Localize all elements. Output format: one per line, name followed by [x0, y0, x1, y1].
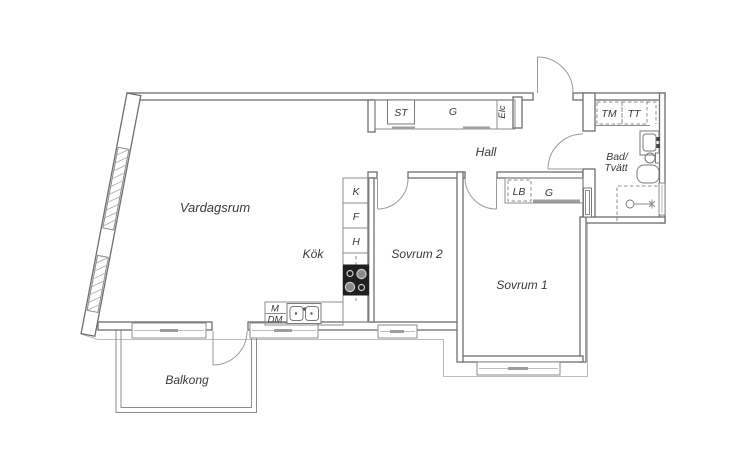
radiator-icon	[584, 188, 592, 217]
label-elc: Elc	[497, 105, 508, 118]
label-m: M	[271, 304, 279, 315]
window-sovrum2	[378, 325, 417, 338]
label-k: K	[352, 186, 360, 198]
floor-plan-page: Vardagsrum Kök Sovrum 2 Sovrum 1 Hall Ba…	[0, 0, 731, 465]
bathtub-icon	[637, 165, 659, 183]
bathroom-door	[548, 134, 583, 169]
label-h: H	[352, 236, 360, 248]
window-bathroom-east	[659, 183, 665, 215]
room-label-sovrum2: Sovrum 2	[391, 247, 443, 261]
stove-icon	[344, 265, 369, 295]
floor-plan-svg: Vardagsrum Kök Sovrum 2 Sovrum 1 Hall Ba…	[0, 0, 731, 465]
shower-area	[617, 186, 659, 221]
kitchen-sink-icon	[287, 304, 321, 324]
sovrum2-door	[378, 178, 409, 209]
room-label-bad-line2: Tvätt	[604, 162, 628, 174]
window-livingroom-1	[132, 323, 206, 338]
room-label-balkong: Balkong	[165, 373, 209, 387]
label-g-sovrum: G	[545, 187, 553, 199]
room-labels: Vardagsrum Kök Sovrum 2 Sovrum 1 Hall Ba…	[165, 145, 629, 387]
window-west-1	[103, 147, 129, 230]
window-sovrum1	[477, 362, 560, 375]
west-slanted-wall	[81, 93, 141, 336]
label-st: ST	[394, 107, 409, 119]
label-tt: TT	[628, 108, 642, 120]
label-f: F	[353, 211, 360, 223]
facade-outline	[81, 223, 588, 377]
entrance-door	[538, 57, 574, 93]
washbasin-icon	[640, 131, 660, 155]
room-label-sovrum1: Sovrum 1	[496, 278, 547, 292]
room-label-vardagsrum: Vardagsrum	[180, 200, 250, 215]
label-lb: LB	[513, 186, 526, 198]
balcony-railing	[116, 330, 257, 413]
balcony-door	[213, 331, 247, 365]
label-dm: DM	[268, 315, 283, 326]
room-label-kok: Kök	[303, 247, 325, 261]
room-label-hall: Hall	[476, 145, 497, 159]
label-g-hall: G	[449, 106, 457, 118]
label-tm: TM	[601, 108, 616, 120]
sovrum1-door	[465, 178, 497, 209]
